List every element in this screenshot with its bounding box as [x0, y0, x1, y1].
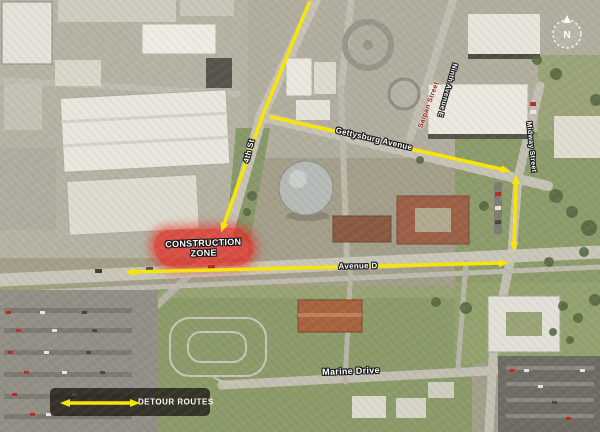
satellite-imagery	[0, 0, 600, 432]
aerial-map: CONSTRUCTION ZONE DETOUR ROUTES Gettysbu…	[0, 0, 600, 432]
